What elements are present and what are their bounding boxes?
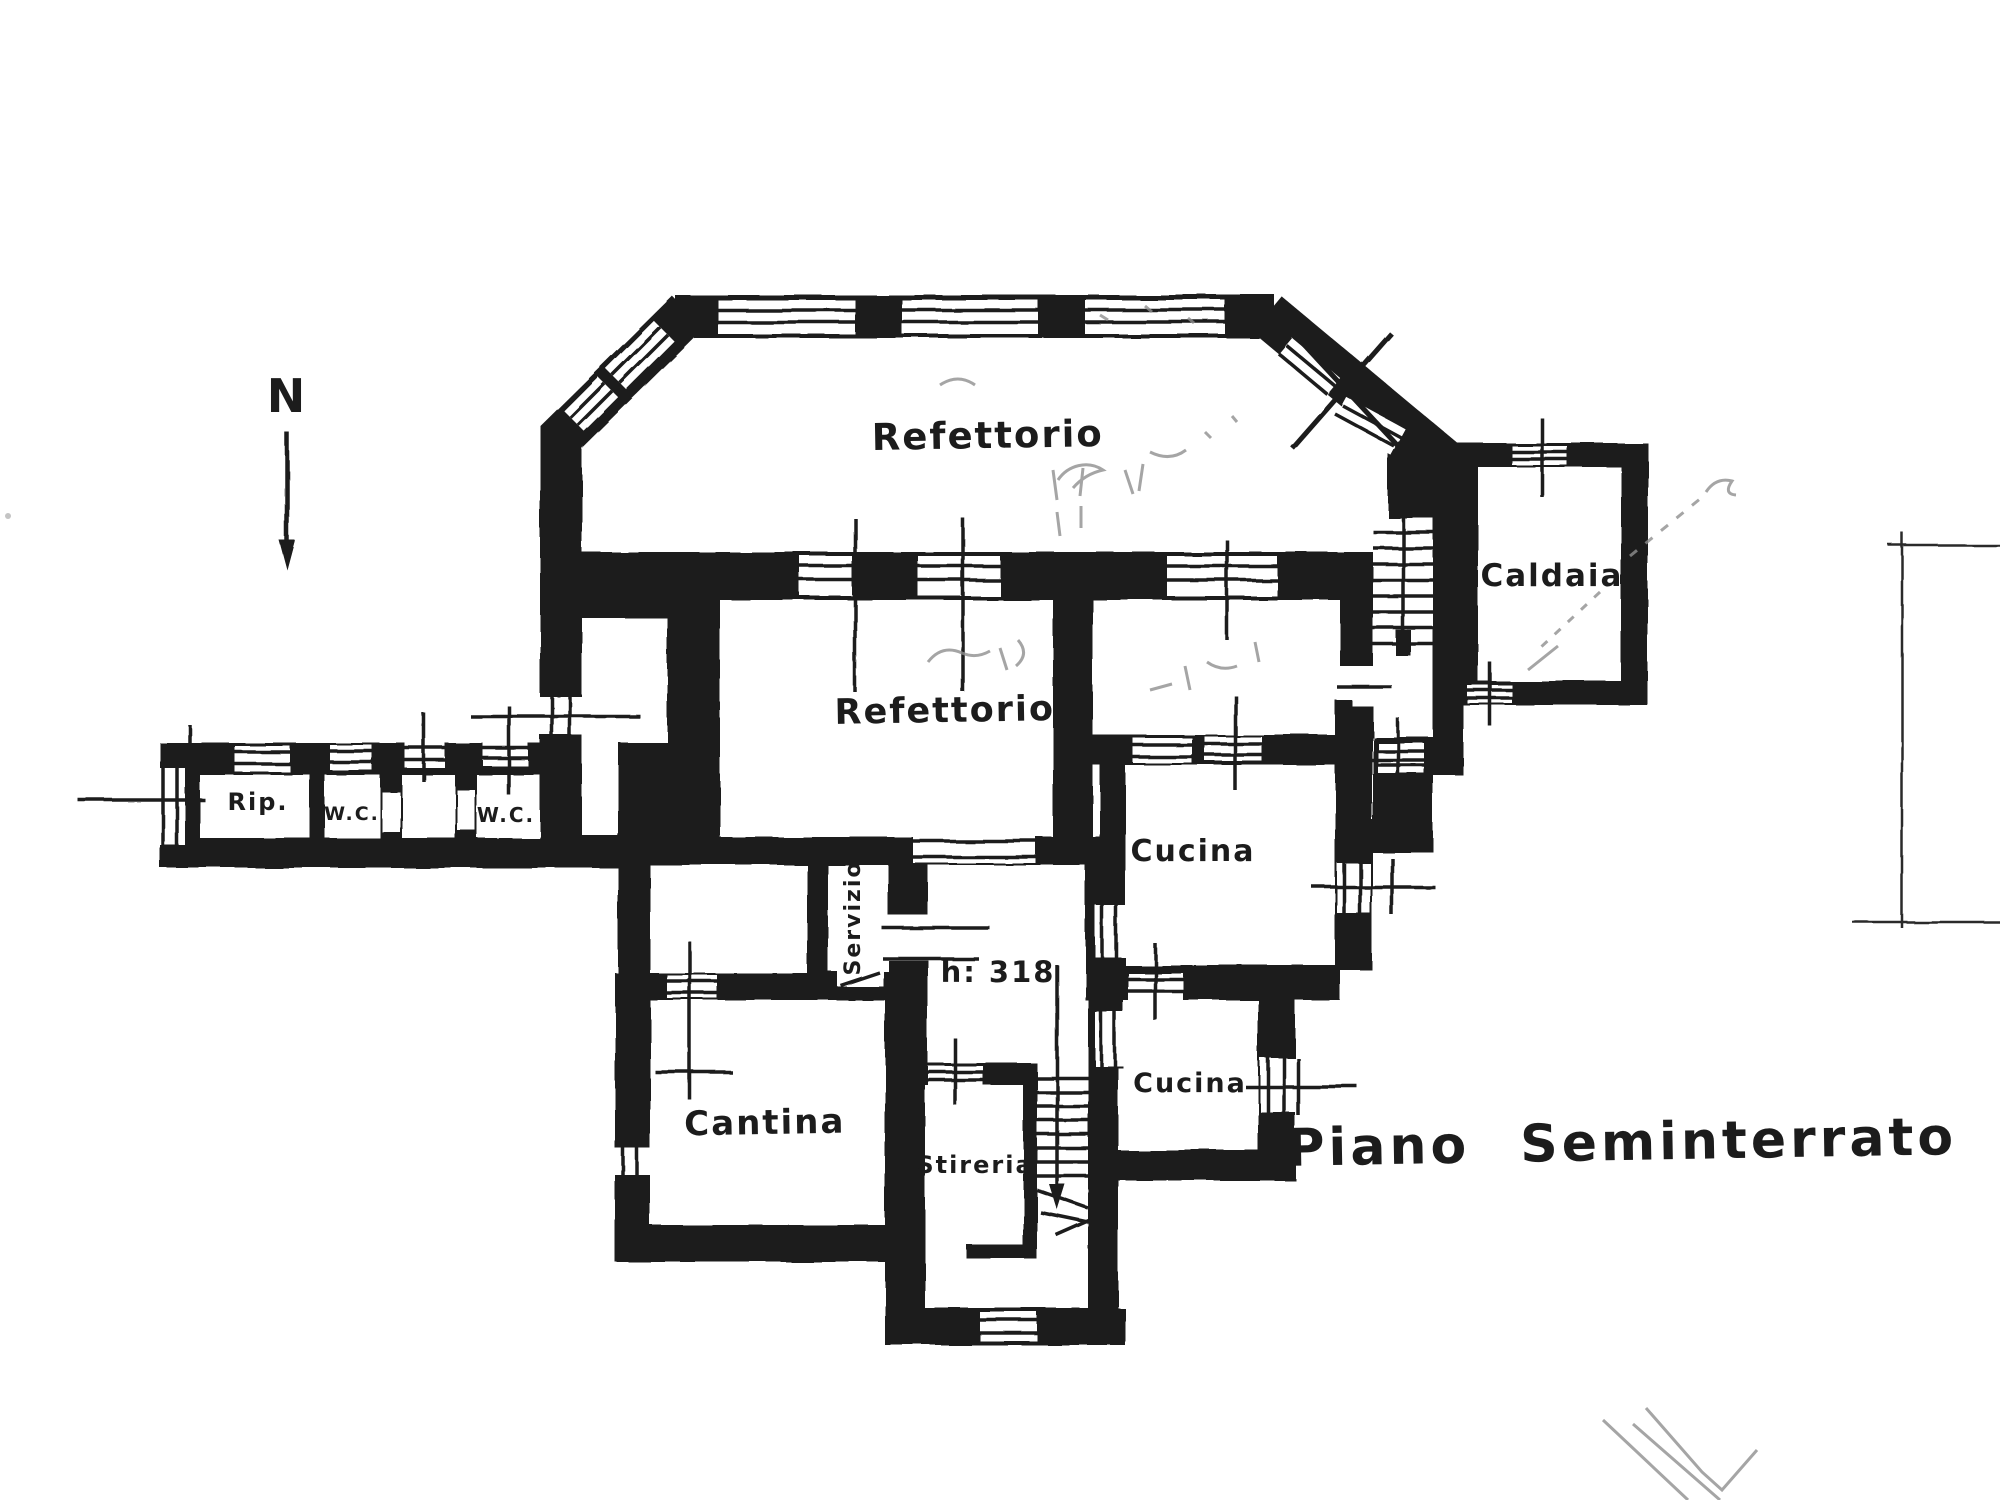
wall-stireria-inner-horiz: [967, 1245, 1037, 1259]
scan-speck: [5, 513, 11, 519]
wall-small-room-left: [618, 863, 650, 973]
pencil-note-sa: [928, 650, 990, 662]
room-label-wc-right: W.C.: [477, 803, 535, 827]
wall-caldaia-right: [1621, 443, 1648, 705]
ceiling-height-note: h: 318: [941, 955, 1056, 989]
floor-plan-canvas: N Refettorio Refettorio Caldaia Rip. W.C…: [0, 0, 2000, 1500]
pencil-annotations: [5, 306, 1757, 1500]
wall-stair2-right: [1088, 1068, 1118, 1345]
room-label-cantina: Cantina: [684, 1102, 846, 1145]
wall-cantina-bottom: [615, 1225, 925, 1262]
north-label: N: [267, 369, 308, 423]
wall-strip-bottom: [160, 838, 610, 868]
floor-plan-sheet: N Refettorio Refettorio Caldaia Rip. W.C…: [0, 0, 2000, 1500]
room-label-cucina-upper: Cucina: [1130, 834, 1255, 869]
room-label-cucina-lower: Cucina: [1133, 1068, 1247, 1099]
north-arrow: [279, 432, 295, 570]
wall-caldaia-left: [1443, 443, 1478, 705]
pencil-stroke-caldaia: [1528, 646, 1558, 670]
pencil-scribble: [940, 379, 975, 385]
wall-under-vestibule: [582, 835, 618, 868]
stair-arrow-down: [1049, 1184, 1065, 1210]
wall-right-filler: [1340, 820, 1373, 852]
pencil-dashed-line-caldaia: [1540, 592, 1600, 648]
wall-partition-1: [310, 775, 325, 838]
wall-vestibule-top: [582, 595, 667, 620]
staircase-lower: [1037, 965, 1090, 1235]
pencil-scribble: [1125, 464, 1143, 494]
plan-title: Piano Seminterrato: [1286, 1107, 1958, 1179]
wall-right-block: [1373, 775, 1433, 852]
room-label-caldaia: Caldaia: [1481, 558, 1624, 594]
wall-vestibule-right: [667, 592, 720, 863]
wall-cucina2-bottom: [1118, 1150, 1295, 1180]
wall-left-upper: [540, 426, 582, 697]
wall-stair1-left: [1340, 552, 1373, 666]
room-label-servizio: Servizio: [841, 861, 866, 976]
wall-cantina-left: [615, 973, 650, 1262]
room-label-wc-left: W.C.: [324, 803, 380, 825]
room-label-ripostiglio: Rip.: [227, 788, 288, 816]
wall-refettorio-small-right: [1053, 595, 1093, 845]
north-arrow-head: [279, 540, 295, 570]
pencil-scribble: [1150, 416, 1237, 457]
pencil-note: [1000, 640, 1024, 670]
room-label-stireria: Stireria: [916, 1151, 1033, 1179]
wall-servizio-left: [807, 863, 828, 975]
pencil-scribble-ne: [1706, 480, 1736, 495]
wall-landing-left: [1352, 706, 1373, 737]
room-label-refettorio-small: Refettorio: [834, 689, 1055, 733]
boundary-lines: [1852, 532, 2000, 928]
room-label-refettorio-large: Refettorio: [871, 412, 1104, 459]
pencil-note: [1150, 642, 1259, 690]
wall-strip-right: [560, 743, 582, 868]
